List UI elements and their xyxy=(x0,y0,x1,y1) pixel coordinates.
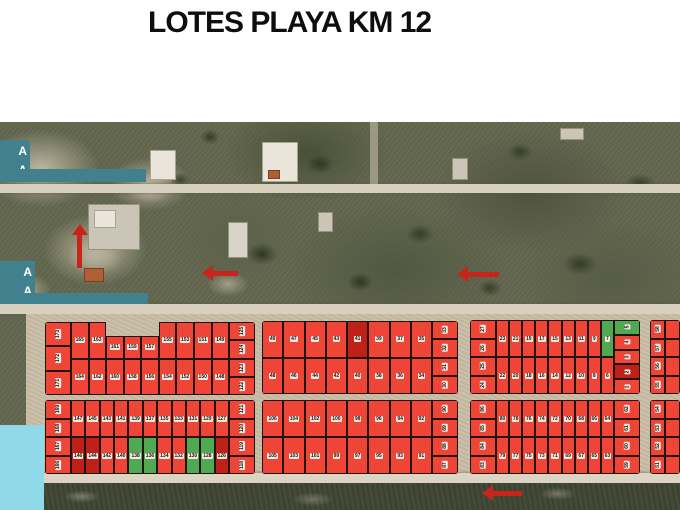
lot-number: 141 xyxy=(116,416,126,422)
bottom-vegetation xyxy=(0,483,680,510)
lot: 92 xyxy=(411,400,432,437)
lot-number: 54 xyxy=(655,405,661,413)
lot-number: 12 xyxy=(564,373,572,379)
lot: 159 xyxy=(124,336,142,359)
lot-number: 102 xyxy=(310,416,320,422)
lot-number: 169 xyxy=(55,404,61,414)
lot: 141 xyxy=(114,400,128,437)
lot xyxy=(665,376,680,395)
lot: 16 xyxy=(535,357,548,394)
lot: 168 xyxy=(45,419,71,438)
lot: 90 xyxy=(432,400,458,419)
lot-number: 137 xyxy=(145,416,155,422)
lot-number: 150 xyxy=(198,374,208,380)
lot: 134 xyxy=(157,437,171,474)
direction-arrow-left xyxy=(457,266,499,282)
direction-arrow-left xyxy=(482,485,522,501)
lot-number: 136 xyxy=(145,453,155,459)
lot: 144 xyxy=(85,437,99,474)
lot-block-A1: 1731721711651631611591571551531511491641… xyxy=(45,322,255,395)
lot-number: 5 xyxy=(624,325,630,330)
lot-number: 20 xyxy=(512,373,520,379)
building xyxy=(560,128,584,140)
lot-number: 98 xyxy=(354,416,362,422)
lot: 38 xyxy=(368,358,389,395)
lot: 163 xyxy=(89,322,107,359)
lot: 42 xyxy=(326,358,347,395)
lot: 151 xyxy=(194,322,212,359)
building xyxy=(150,150,176,180)
lot: 22 xyxy=(496,357,509,394)
lot-number: 167 xyxy=(55,441,61,451)
lot: 8 xyxy=(588,357,601,394)
lot-number: 57 xyxy=(655,344,661,352)
lot: 85 xyxy=(470,419,496,438)
lot: 20 xyxy=(509,357,522,394)
lot: 153 xyxy=(176,322,194,359)
lot: 67 xyxy=(575,437,588,474)
lot-map: A A A A 17317217116516316115915715515315… xyxy=(0,122,680,510)
lot: 149 xyxy=(212,322,230,359)
lot-number: 147 xyxy=(73,416,83,422)
lot-number: 45 xyxy=(311,336,319,342)
lot-number: 90 xyxy=(442,405,448,413)
lot-number: 27 xyxy=(480,325,486,333)
lot: 143 xyxy=(100,400,114,437)
lot: 157 xyxy=(141,336,159,359)
lot-number: 25 xyxy=(480,362,486,370)
lot-number: 130 xyxy=(188,453,198,459)
lot-number: 14 xyxy=(551,373,559,379)
lot-number: 24 xyxy=(480,381,486,389)
lot: 59 xyxy=(614,456,640,475)
lot xyxy=(665,437,680,456)
lot: 51 xyxy=(650,456,665,475)
lot: 71 xyxy=(548,437,561,474)
lot: 64 xyxy=(601,400,614,437)
lot: 47 xyxy=(283,321,304,358)
lot: 118 xyxy=(229,456,255,475)
side-label-line: A xyxy=(0,263,32,282)
lot: 56 xyxy=(650,357,665,376)
lot: 24 xyxy=(470,376,496,395)
direction-arrow-left xyxy=(202,265,238,281)
lot: 98 xyxy=(347,400,368,437)
road-top xyxy=(0,184,680,193)
lot: 2 xyxy=(614,364,640,379)
lot: 53 xyxy=(650,419,665,438)
lot-number: 101 xyxy=(310,453,320,459)
lot-number: 61 xyxy=(624,424,630,432)
lot-number: 138 xyxy=(130,453,140,459)
lot-number: 80 xyxy=(499,416,507,422)
lot-number: 10 xyxy=(577,373,585,379)
lot: 3 xyxy=(614,350,640,365)
lot: 172 xyxy=(45,346,71,370)
lot-number: 9 xyxy=(592,336,597,342)
lot: 66 xyxy=(588,400,601,437)
lot: 150 xyxy=(194,359,212,396)
side-label-top-bar xyxy=(0,169,146,182)
lot: 15 xyxy=(548,320,561,357)
lot: 120 xyxy=(229,419,255,438)
lot-number: 160 xyxy=(110,374,120,380)
lot-number: 142 xyxy=(102,453,112,459)
lot-number: 168 xyxy=(55,423,61,433)
lot: 152 xyxy=(176,359,194,396)
lot-number: 164 xyxy=(75,374,85,380)
lot: 14 xyxy=(548,357,561,394)
lot: 55 xyxy=(650,376,665,395)
lot-number: 62 xyxy=(624,405,630,413)
lot: 78 xyxy=(509,400,522,437)
lot-number: 31 xyxy=(442,363,448,371)
lot: 173 xyxy=(45,322,71,346)
lot: 87 xyxy=(432,456,458,475)
lot-number: 11 xyxy=(578,336,585,342)
lot-number: 91 xyxy=(418,453,426,459)
lot-number: 65 xyxy=(591,453,599,459)
lot: 125 xyxy=(229,322,255,340)
lot-number: 49 xyxy=(269,336,277,342)
lot-number: 140 xyxy=(116,453,126,459)
lot-number: 83 xyxy=(480,461,486,469)
lot-number: 100 xyxy=(331,416,341,422)
lot-number: 68 xyxy=(577,416,585,422)
lot-number: 70 xyxy=(564,416,572,422)
lot: 133 xyxy=(172,400,186,437)
lot-number: 153 xyxy=(180,337,190,343)
lot: 147 xyxy=(71,400,85,437)
lot: 27 xyxy=(470,320,496,339)
lot-number: 26 xyxy=(480,344,486,352)
building xyxy=(94,210,116,228)
lot-number: 104 xyxy=(289,416,299,422)
lot xyxy=(665,419,680,438)
lot: 10 xyxy=(575,357,588,394)
lot-number: 152 xyxy=(180,374,190,380)
lot-number: 44 xyxy=(311,373,319,379)
lot-number: 145 xyxy=(87,416,97,422)
lot-number: 129 xyxy=(202,416,212,422)
page: LOTES PLAYA KM 12 A A A A 17317217116516 xyxy=(0,0,680,510)
lot: 57 xyxy=(650,339,665,358)
lot-number: 36 xyxy=(396,373,404,379)
lot-number: 43 xyxy=(333,336,341,342)
lot: 135 xyxy=(157,400,171,437)
lot-number: 35 xyxy=(418,336,426,342)
lot-number: 156 xyxy=(145,374,155,380)
lot: 19 xyxy=(522,320,535,357)
direction-arrow-up xyxy=(72,224,88,268)
lot: 60 xyxy=(614,437,640,456)
lot: 30 xyxy=(432,376,458,394)
lot: 95 xyxy=(368,437,389,474)
lot: 100 xyxy=(326,400,347,437)
lot-number: 86 xyxy=(480,405,486,413)
side-label-line: A xyxy=(0,142,27,161)
lot: 65 xyxy=(588,437,601,474)
lot-number: 63 xyxy=(604,453,612,459)
lot-number: 75 xyxy=(525,453,533,459)
lot: 52 xyxy=(650,437,665,456)
lot-number: 148 xyxy=(215,374,225,380)
lot: 75 xyxy=(522,437,535,474)
lot-number: 135 xyxy=(159,416,169,422)
lot-number: 85 xyxy=(480,424,486,432)
lot: 129 xyxy=(200,400,214,437)
lot-number: 72 xyxy=(551,416,559,422)
dirt-path xyxy=(370,122,378,184)
lot-number: 66 xyxy=(591,416,599,422)
lot-number: 118 xyxy=(239,460,245,470)
lot: 58 xyxy=(650,320,665,339)
lot-number: 77 xyxy=(512,453,520,459)
lot-number: 18 xyxy=(525,373,533,379)
lot: 148 xyxy=(212,359,230,396)
lot-number: 42 xyxy=(333,373,341,379)
building xyxy=(452,158,468,180)
lot xyxy=(665,456,680,475)
lot: 161 xyxy=(106,336,124,359)
lot-number: 126 xyxy=(217,453,227,459)
lot: 12 xyxy=(562,357,575,394)
lot: 68 xyxy=(575,400,588,437)
lot-number: 69 xyxy=(564,453,572,459)
lot xyxy=(665,320,680,339)
lot-number: 149 xyxy=(215,337,225,343)
lot-number: 103 xyxy=(289,453,299,459)
lot-number: 30 xyxy=(442,381,448,389)
lot-number: 134 xyxy=(159,453,169,459)
lot: 167 xyxy=(45,437,71,456)
lot: 106 xyxy=(262,400,283,437)
lot: 97 xyxy=(347,437,368,474)
lot-block-B1: 1691681671661471451431411391371351331311… xyxy=(45,400,255,474)
lot-number: 17 xyxy=(538,336,546,342)
lot-block-A2: 4947454341393735484644424038363433323130 xyxy=(262,321,458,394)
lot-number: 133 xyxy=(174,416,184,422)
lot-number: 139 xyxy=(130,416,140,422)
lot: 132 xyxy=(172,437,186,474)
lot: 79 xyxy=(496,437,509,474)
lot-number: 96 xyxy=(375,416,383,422)
lot: 34 xyxy=(411,358,432,395)
lot: 86 xyxy=(470,400,496,419)
lot-number: 172 xyxy=(55,353,61,363)
lot-number: 21 xyxy=(512,336,520,342)
lot: 140 xyxy=(114,437,128,474)
lot-number: 165 xyxy=(75,337,85,343)
lot: 5 xyxy=(614,320,640,335)
lot-number: 93 xyxy=(396,453,404,459)
lot-number: 38 xyxy=(375,373,383,379)
lot: 43 xyxy=(326,321,347,358)
lot: 99 xyxy=(326,437,347,474)
lot-number: 151 xyxy=(198,337,208,343)
lot xyxy=(665,400,680,419)
lot-number: 166 xyxy=(55,460,61,470)
building xyxy=(268,170,280,179)
lot-number: 159 xyxy=(127,344,137,350)
lot-number: 53 xyxy=(655,424,661,432)
lot: 11 xyxy=(575,320,588,357)
lot: 31 xyxy=(432,358,458,376)
lot: 145 xyxy=(85,400,99,437)
lot: 104 xyxy=(283,400,304,437)
lot: 165 xyxy=(71,322,89,359)
lot-number: 76 xyxy=(525,416,533,422)
lot-number: 78 xyxy=(512,416,520,422)
lot: 119 xyxy=(229,437,255,456)
lot-number: 125 xyxy=(239,326,245,336)
lot-number: 122 xyxy=(239,381,245,391)
lot: 23 xyxy=(496,320,509,357)
lot-number: 2 xyxy=(624,369,630,374)
lot-number: 19 xyxy=(525,336,533,342)
lot-number: 67 xyxy=(577,453,585,459)
lot-number: 52 xyxy=(655,442,661,450)
lot-number: 171 xyxy=(55,378,61,388)
lot: 94 xyxy=(390,400,411,437)
lot: 121 xyxy=(229,400,255,419)
lot: 126 xyxy=(215,437,229,474)
lot: 93 xyxy=(390,437,411,474)
lot: 18 xyxy=(522,357,535,394)
lot-number: 127 xyxy=(217,416,227,422)
lot: 105 xyxy=(262,437,283,474)
lot-number: 64 xyxy=(604,416,612,422)
lot: 136 xyxy=(143,437,157,474)
lot-number: 128 xyxy=(202,453,212,459)
lot: 61 xyxy=(614,419,640,438)
lot-number: 8 xyxy=(592,373,597,379)
lot-number: 84 xyxy=(480,442,486,450)
lot-block-B4: 54535251 xyxy=(650,400,680,474)
lot: 37 xyxy=(390,321,411,358)
lot-number: 32 xyxy=(442,345,448,353)
lot-number: 132 xyxy=(174,453,184,459)
building xyxy=(318,212,333,232)
lot: 48 xyxy=(262,358,283,395)
lot-number: 158 xyxy=(127,374,137,380)
lot: 9 xyxy=(588,320,601,357)
lot: 80 xyxy=(496,400,509,437)
lot: 131 xyxy=(186,400,200,437)
lot-number: 120 xyxy=(239,423,245,433)
lot: 69 xyxy=(562,437,575,474)
lot-number: 23 xyxy=(499,336,507,342)
lot-number: 155 xyxy=(162,337,172,343)
lot: 154 xyxy=(159,359,177,396)
lot-number: 92 xyxy=(418,416,426,422)
lot-number: 40 xyxy=(354,373,362,379)
lot: 62 xyxy=(614,400,640,419)
lot: 46 xyxy=(283,358,304,395)
lot-number: 60 xyxy=(624,442,630,450)
lot: 26 xyxy=(470,339,496,358)
lot: 89 xyxy=(432,419,458,438)
lot-block-B2: 1061041021009896949210510310199979593919… xyxy=(262,400,458,474)
lot-number: 37 xyxy=(396,336,404,342)
lot-number: 55 xyxy=(655,381,661,389)
lot: 6 xyxy=(601,357,614,394)
lot-number: 73 xyxy=(538,453,546,459)
lot: 127 xyxy=(215,400,229,437)
lot: 155 xyxy=(159,322,177,359)
road-bottom xyxy=(0,473,680,483)
lot-number: 123 xyxy=(239,362,245,372)
lot: 77 xyxy=(509,437,522,474)
lot: 102 xyxy=(305,400,326,437)
lot: 73 xyxy=(535,437,548,474)
lot: 74 xyxy=(535,400,548,437)
lot-number: 33 xyxy=(442,326,448,334)
lot: 40 xyxy=(347,358,368,395)
lot-number: 39 xyxy=(375,336,383,342)
lot-number: 87 xyxy=(442,461,448,469)
lot: 122 xyxy=(229,377,255,395)
lot-number: 34 xyxy=(418,373,426,379)
lot: 36 xyxy=(390,358,411,395)
lot: 139 xyxy=(128,400,142,437)
lot: 83 xyxy=(470,456,496,475)
lot: 7 xyxy=(601,320,614,357)
lot: 49 xyxy=(262,321,283,358)
lot-number: 1 xyxy=(624,384,630,389)
lot-number: 13 xyxy=(564,336,572,342)
lot: 128 xyxy=(200,437,214,474)
lot: 21 xyxy=(509,320,522,357)
lot-number: 154 xyxy=(162,374,172,380)
lot: 25 xyxy=(470,357,496,376)
lot: 123 xyxy=(229,359,255,377)
lot: 171 xyxy=(45,371,71,395)
lot: 41 xyxy=(347,321,368,358)
lot-number: 119 xyxy=(239,441,245,451)
cyan-panel xyxy=(0,425,44,510)
lot: 39 xyxy=(368,321,389,358)
lot-number: 74 xyxy=(538,416,546,422)
building xyxy=(84,268,104,282)
lot-number: 46 xyxy=(290,373,298,379)
lot: 160 xyxy=(106,359,124,396)
lot: 138 xyxy=(128,437,142,474)
lot-number: 131 xyxy=(188,416,198,422)
lot-number: 88 xyxy=(442,442,448,450)
lot: 91 xyxy=(411,437,432,474)
road-middle xyxy=(0,304,680,314)
lot: 33 xyxy=(432,321,458,339)
lot: 96 xyxy=(368,400,389,437)
lot: 45 xyxy=(305,321,326,358)
lot: 166 xyxy=(45,456,71,475)
lot: 84 xyxy=(470,437,496,456)
lot-number: 59 xyxy=(624,461,630,469)
lot: 146 xyxy=(71,437,85,474)
lot: 142 xyxy=(100,437,114,474)
lot: 76 xyxy=(522,400,535,437)
lot: 124 xyxy=(229,340,255,358)
side-label-bottom-bar xyxy=(0,293,148,304)
lot: 54 xyxy=(650,400,665,419)
lot-number: 6 xyxy=(605,373,610,379)
lot-number: 157 xyxy=(145,344,155,350)
lot-number: 162 xyxy=(92,374,102,380)
lot-number: 163 xyxy=(92,337,102,343)
lot-block-B3: 8685848380787674727068666479777573716967… xyxy=(470,400,640,474)
lot-block-A3: 2726252423211917151311972220181614121086… xyxy=(470,320,640,394)
